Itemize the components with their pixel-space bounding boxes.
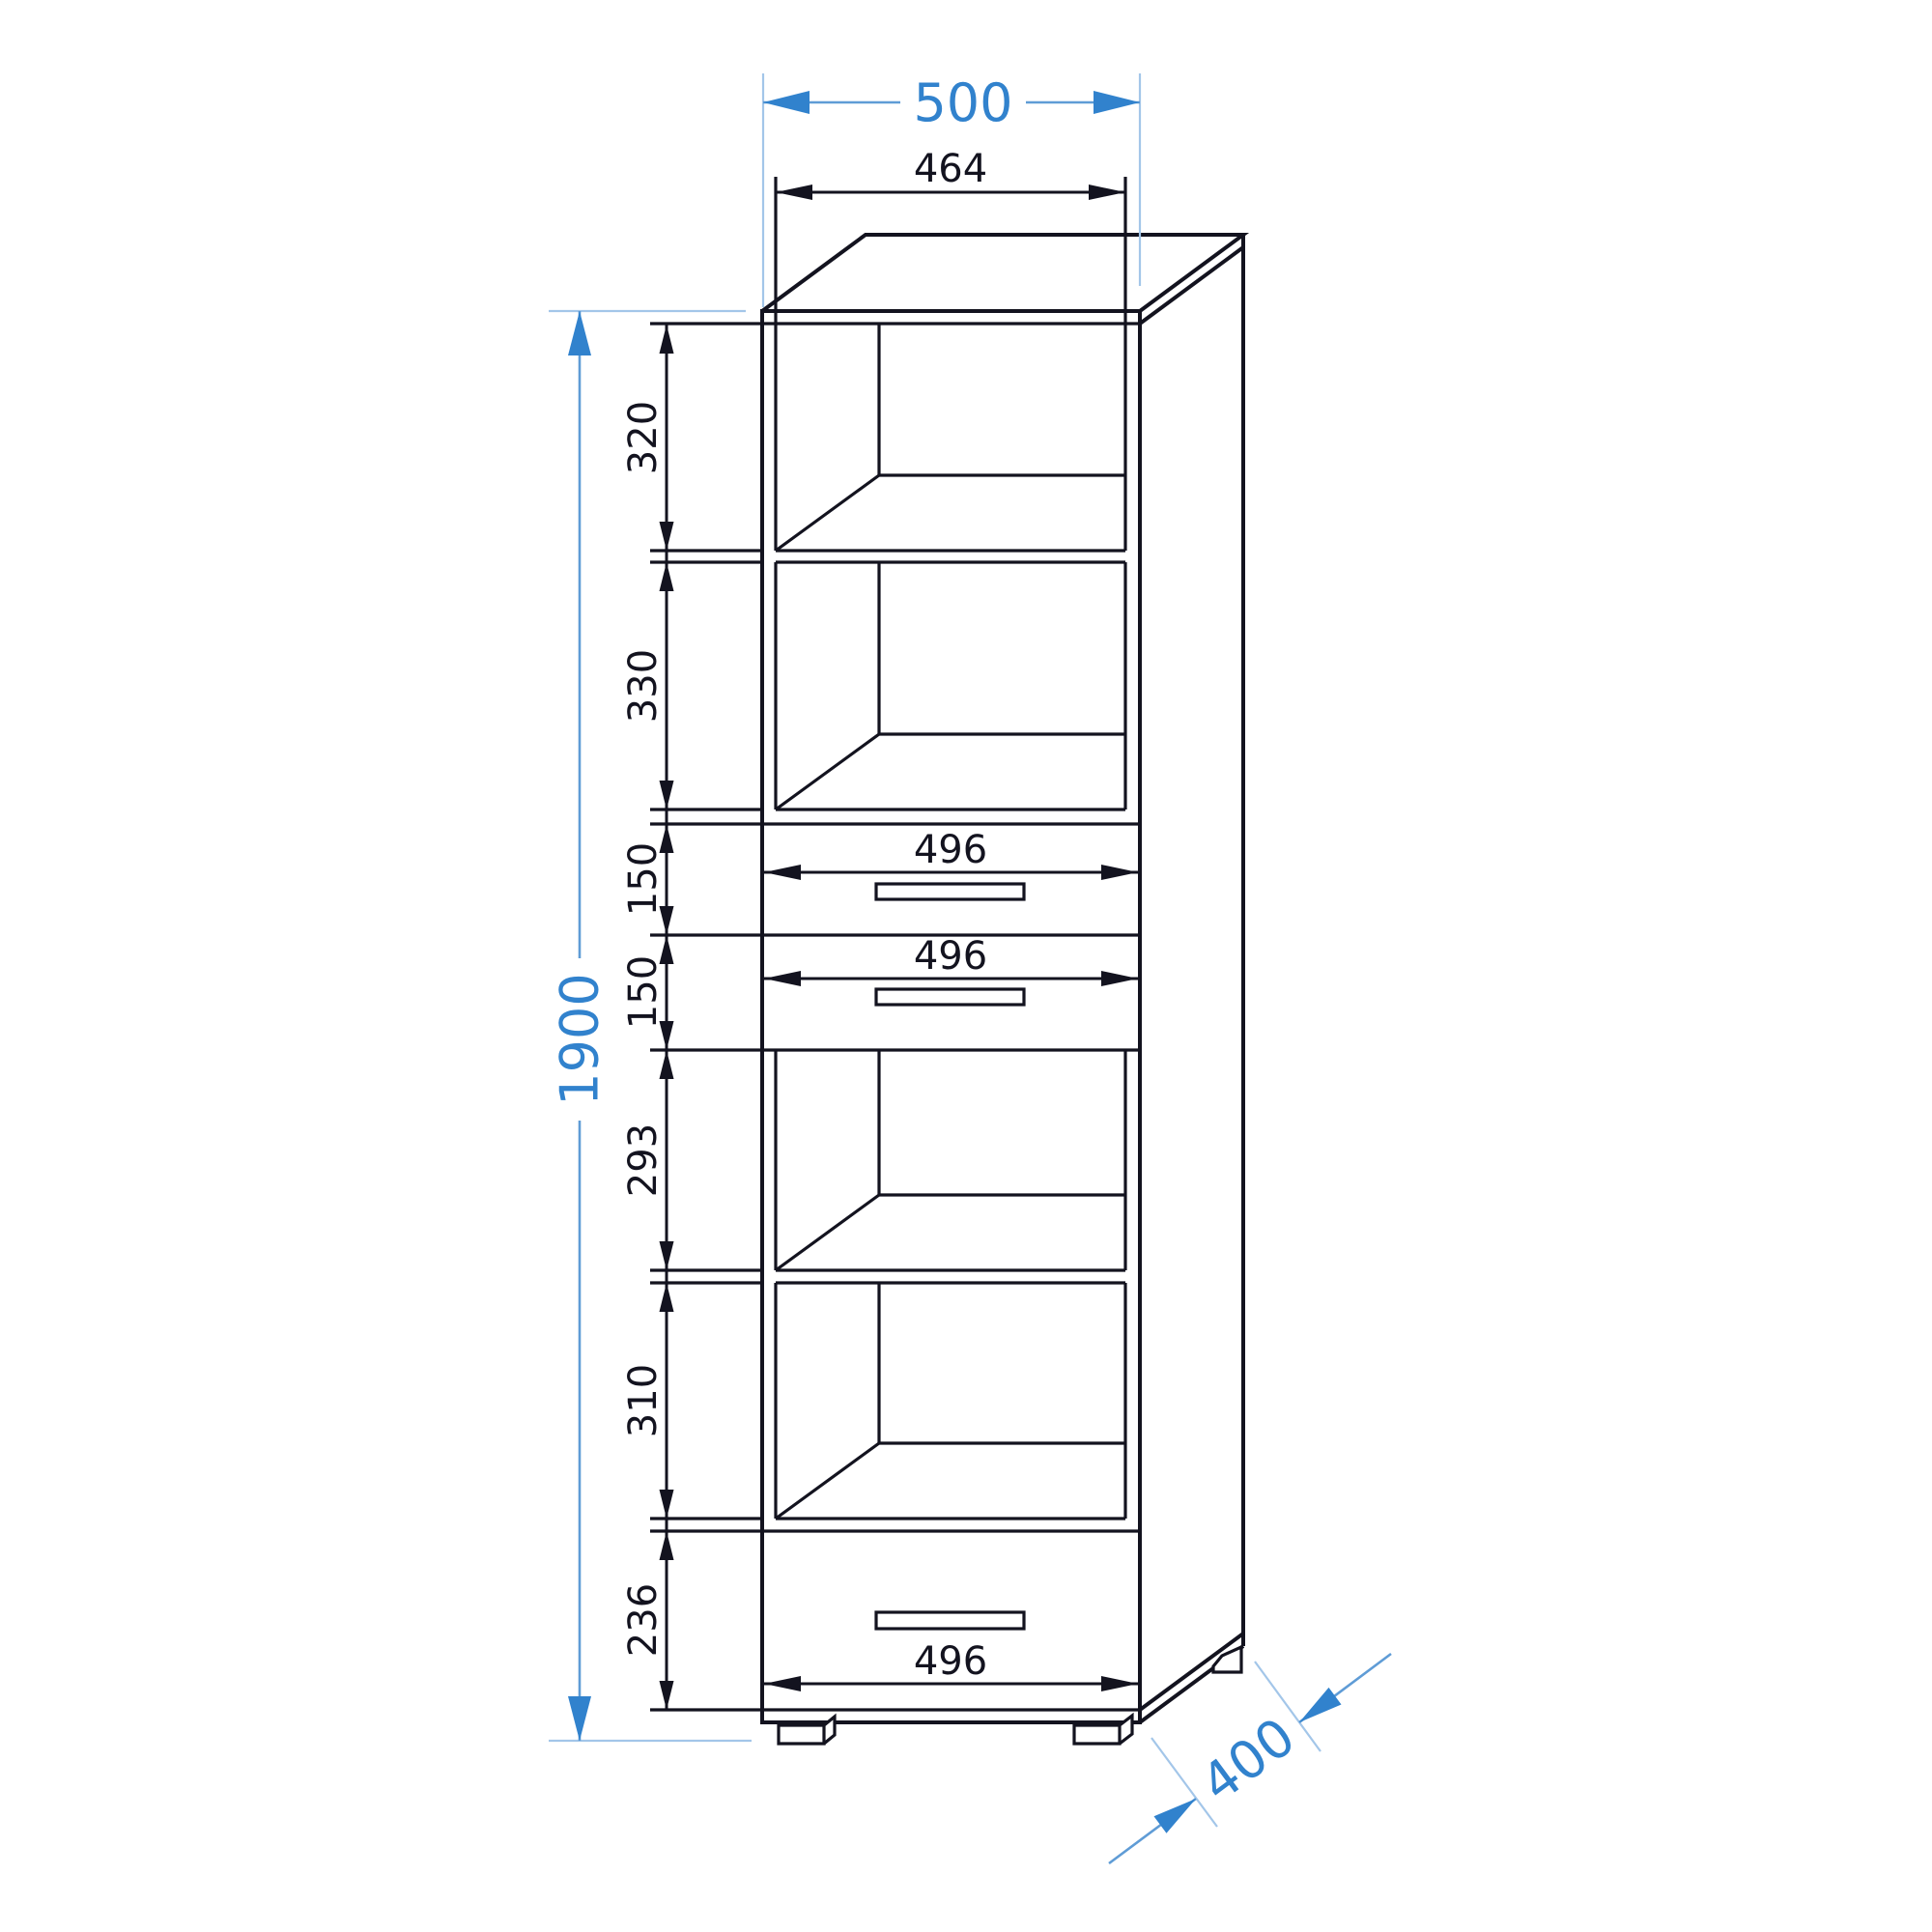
arrow-up-icon — [660, 562, 674, 591]
cabinet-horizontal-edges-full — [650, 324, 1140, 1710]
dim-inner-width: 464 — [776, 147, 1125, 200]
arrow-up-icon — [568, 311, 591, 355]
arrow-down-icon — [660, 781, 674, 810]
cabinet-front-outline — [762, 311, 1140, 1722]
arrow-left-icon — [776, 185, 812, 200]
arrow-right-icon — [1094, 91, 1140, 114]
dim-drawer-3-label: 496 — [914, 1639, 987, 1684]
arrow-up-icon — [660, 325, 674, 354]
dim-drawer-width-3: 496 — [764, 1639, 1138, 1691]
dim-section-7-label: 236 — [621, 1583, 666, 1657]
arrow-right-icon — [1101, 971, 1138, 986]
arrow-left-icon — [764, 865, 801, 880]
foot-front-right — [1074, 1716, 1132, 1744]
dim-drawer-2-label: 496 — [914, 934, 987, 979]
dim-drawer-width-1: 496 — [764, 828, 1138, 880]
arrow-right-icon — [1101, 865, 1138, 880]
cabinet-side-panel-bottom-edges — [1140, 1634, 1243, 1722]
arrow-down-icon — [568, 1696, 591, 1741]
shelf-front-edges — [650, 551, 1125, 1519]
dim-inner-width-label: 464 — [914, 147, 987, 191]
cabinet-top-panel-thickness-edge — [1140, 247, 1243, 324]
arrow-down-icon — [660, 1490, 674, 1519]
arrow-down-icon — [660, 1681, 674, 1710]
dim-section-chain: 320 330 150 150 293 310 236 — [621, 325, 674, 1710]
arrow-right-icon — [1089, 185, 1125, 200]
drawer-2-handle — [876, 989, 1024, 1005]
arrow-down-icon — [660, 522, 674, 551]
arrow-left-icon — [764, 1676, 801, 1691]
furniture-dimension-drawing: 464 496 496 496 3 — [0, 0, 1932, 1932]
arrow-left-icon — [763, 91, 810, 114]
arrow-down-left-icon — [1299, 1688, 1342, 1722]
interior-depth-diagonals — [776, 475, 879, 1519]
dim-overall-width-label: 500 — [913, 72, 1012, 133]
dim-section-3-label: 150 — [621, 842, 666, 916]
dim-overall-height-label: 1900 — [550, 973, 611, 1105]
arrow-up-icon — [660, 1531, 674, 1560]
dim-overall-depth: 400 — [1109, 1654, 1391, 1863]
drawer-handles — [876, 884, 1024, 1629]
arrow-up-icon — [660, 1283, 674, 1312]
dim-section-6-label: 310 — [621, 1364, 666, 1437]
dim-section-5-label: 293 — [621, 1123, 666, 1197]
drawer-1-handle — [876, 884, 1024, 899]
arrow-right-icon — [1101, 1676, 1138, 1691]
arrow-down-icon — [660, 1241, 674, 1270]
drawer-3-handle — [876, 1612, 1024, 1629]
dim-section-4-label: 150 — [621, 955, 666, 1029]
dim-drawer-1-label: 496 — [914, 828, 987, 872]
arrow-left-icon — [764, 971, 801, 986]
dim-overall-depth-label: 400 — [1190, 1706, 1306, 1814]
arrow-up-icon — [660, 1050, 674, 1079]
drawing-canvas: 464 496 496 496 3 — [0, 0, 1932, 1932]
dim-section-1-label: 320 — [621, 401, 666, 474]
arrow-up-right-icon — [1154, 1799, 1197, 1833]
dim-drawer-width-2: 496 — [764, 934, 1138, 986]
dim-section-2-label: 330 — [621, 649, 666, 723]
cabinet-feet — [779, 1647, 1241, 1744]
